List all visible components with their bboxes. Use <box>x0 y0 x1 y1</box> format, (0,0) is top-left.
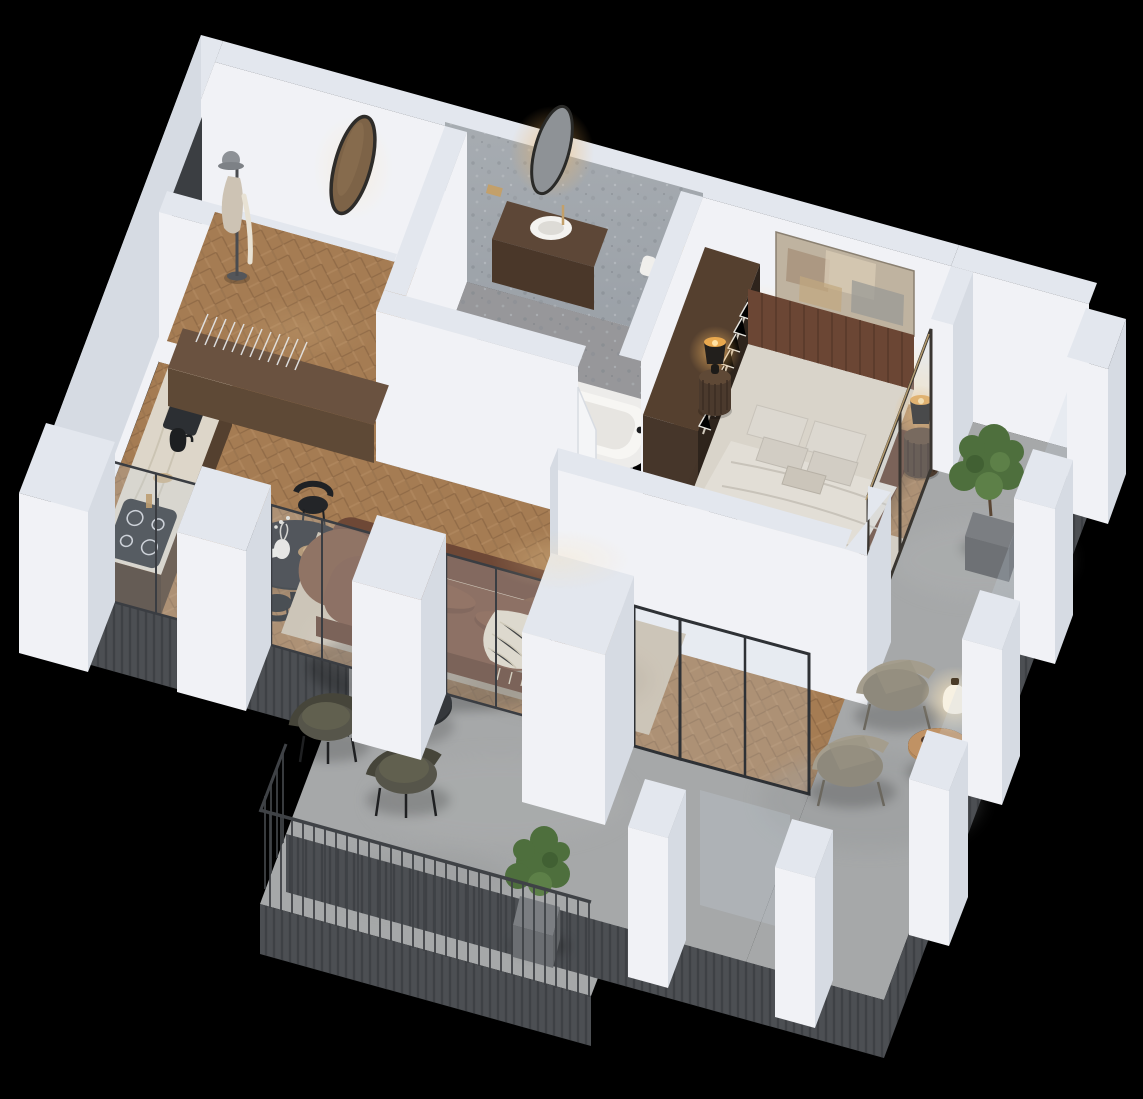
apartment-3d-floorplan <box>0 0 1143 1099</box>
parapet-pier <box>909 730 968 946</box>
balcony-glass-door <box>634 606 680 759</box>
parapet-pier <box>628 779 686 988</box>
floorplan-render <box>0 0 1143 1099</box>
pier-1 <box>177 466 271 711</box>
parapet-pier <box>1067 308 1126 524</box>
pier-southwest-corner <box>19 423 115 672</box>
parapet-pier <box>1014 449 1073 664</box>
parapet-pier <box>962 590 1020 805</box>
pier-3-large <box>522 553 634 825</box>
parapet-pier <box>775 819 833 1028</box>
pier-2 <box>352 515 446 760</box>
